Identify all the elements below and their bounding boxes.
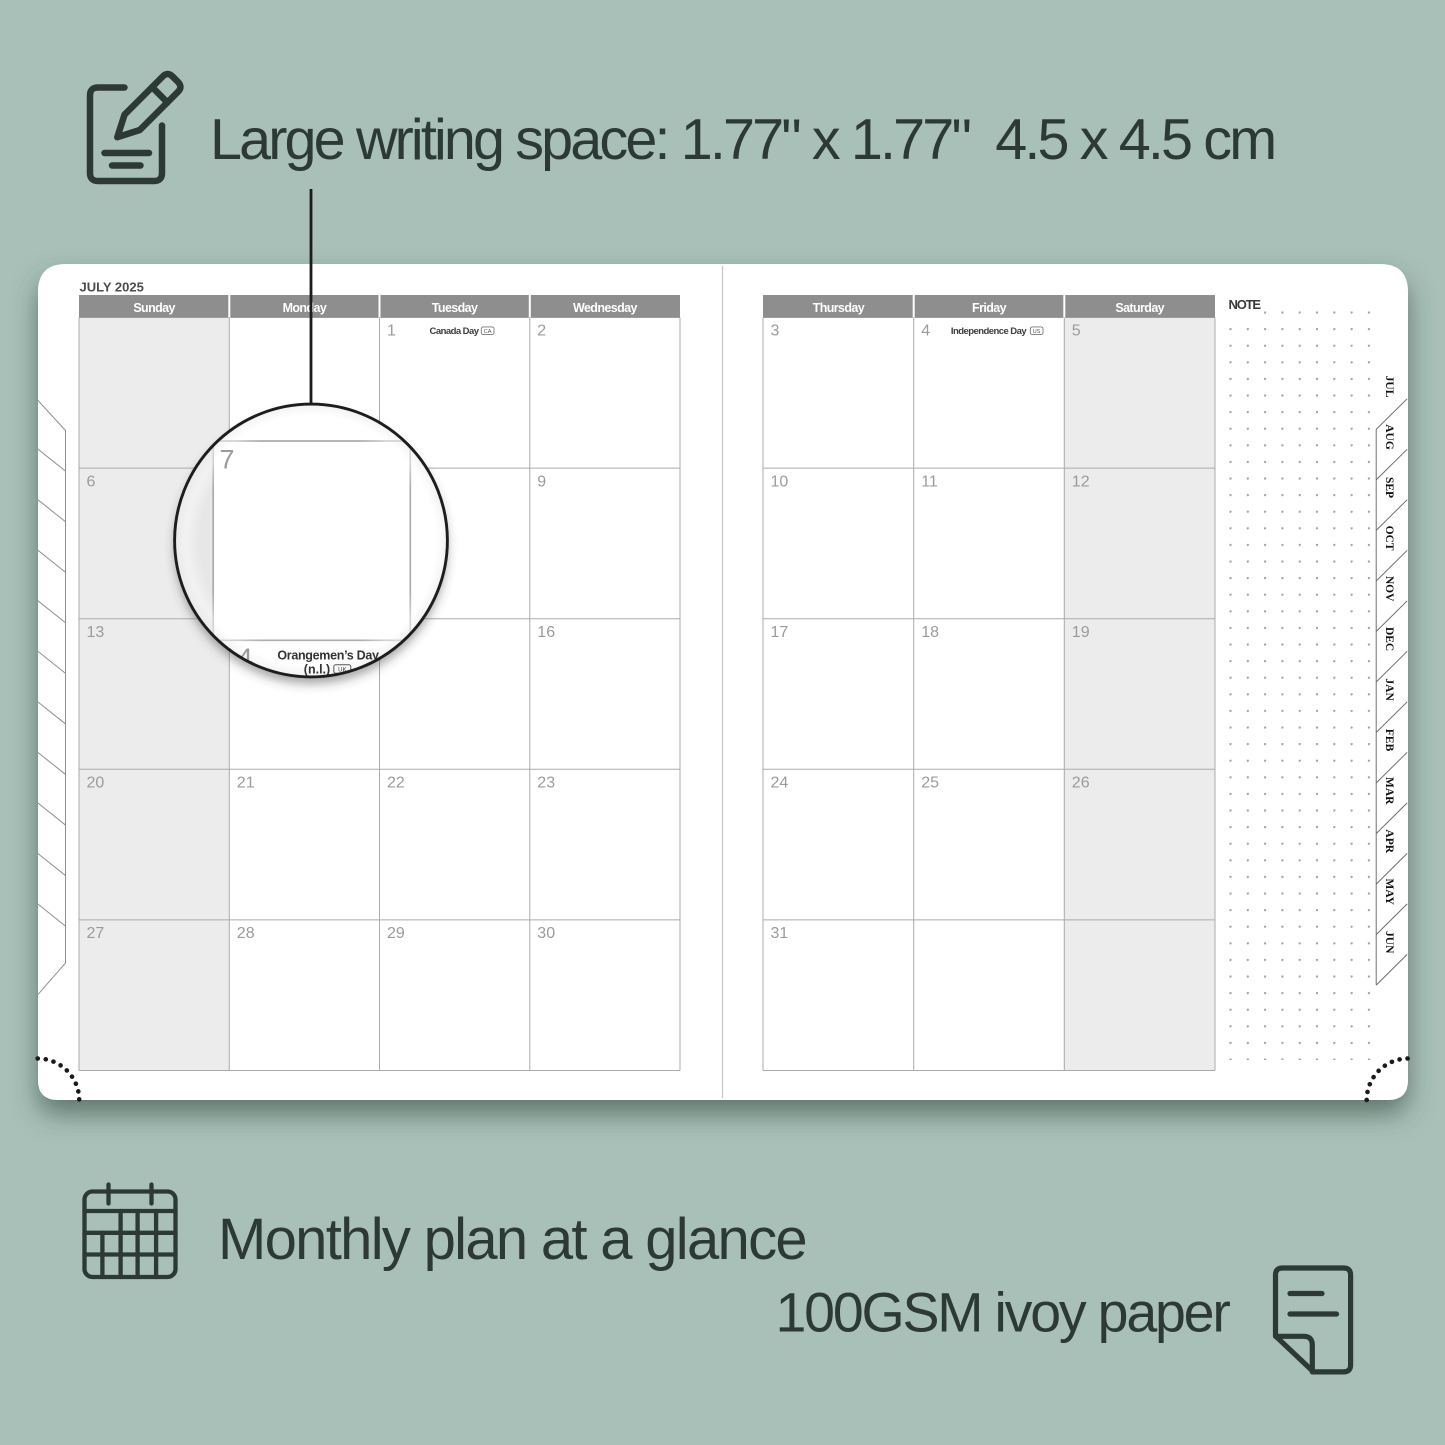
svg-text:11: 11 bbox=[921, 473, 938, 490]
svg-text:Wednesday: Wednesday bbox=[573, 301, 637, 315]
svg-text:29: 29 bbox=[387, 925, 405, 942]
svg-text:22: 22 bbox=[387, 775, 405, 792]
svg-text:100GSM ivoy paper: 100GSM ivoy paper bbox=[776, 1282, 1231, 1344]
svg-text:Monthly plan at a glance: Monthly plan at a glance bbox=[218, 1207, 806, 1272]
svg-text:NOV: NOV bbox=[1383, 576, 1395, 602]
svg-text:13: 13 bbox=[87, 624, 105, 641]
svg-text:3: 3 bbox=[771, 323, 780, 340]
svg-text:31: 31 bbox=[771, 925, 789, 942]
svg-text:19: 19 bbox=[1072, 624, 1090, 641]
svg-text:26: 26 bbox=[1072, 775, 1090, 792]
svg-text:30: 30 bbox=[537, 925, 555, 942]
svg-text:27: 27 bbox=[87, 925, 105, 942]
svg-text:AUG: AUG bbox=[1383, 424, 1395, 450]
svg-text:JAN: JAN bbox=[1383, 678, 1395, 701]
svg-text:JUL: JUL bbox=[1383, 376, 1395, 398]
svg-text:Saturday: Saturday bbox=[1115, 301, 1164, 315]
svg-text:7: 7 bbox=[220, 444, 235, 474]
svg-text:US: US bbox=[1033, 329, 1041, 335]
svg-text:JULY 2025: JULY 2025 bbox=[80, 280, 144, 295]
svg-text:20: 20 bbox=[87, 775, 105, 792]
svg-text:OCT: OCT bbox=[1383, 526, 1395, 551]
svg-text:Friday: Friday bbox=[972, 301, 1007, 315]
svg-text:FEB: FEB bbox=[1383, 729, 1395, 752]
svg-text:SEP: SEP bbox=[1383, 477, 1395, 498]
svg-text:28: 28 bbox=[237, 925, 255, 942]
svg-text:MAR: MAR bbox=[1383, 777, 1395, 805]
svg-text:12: 12 bbox=[1072, 473, 1090, 490]
svg-text:25: 25 bbox=[921, 775, 939, 792]
svg-text:10: 10 bbox=[771, 473, 789, 490]
svg-text:16: 16 bbox=[537, 624, 555, 641]
svg-text:Canada Day: Canada Day bbox=[430, 326, 480, 337]
svg-text:Large writing space: 1.77" x 1: Large writing space: 1.77" x 1.77" 4.5 x… bbox=[210, 108, 1274, 172]
svg-text:NOTE: NOTE bbox=[1229, 297, 1262, 312]
svg-text:CA: CA bbox=[484, 329, 492, 335]
svg-text:Thursday: Thursday bbox=[813, 301, 865, 315]
svg-text:18: 18 bbox=[921, 624, 939, 641]
svg-text:JUN: JUN bbox=[1383, 931, 1395, 954]
svg-text:Monday: Monday bbox=[283, 301, 327, 315]
svg-text:1: 1 bbox=[387, 323, 396, 340]
svg-text:Orangemen’s Day: Orangemen’s Day bbox=[277, 649, 379, 663]
svg-text:24: 24 bbox=[771, 775, 789, 792]
svg-text:Sunday: Sunday bbox=[133, 301, 175, 315]
svg-text:17: 17 bbox=[771, 624, 789, 641]
svg-text:9: 9 bbox=[537, 473, 546, 490]
svg-text:(n.l.): (n.l.) bbox=[304, 662, 330, 676]
svg-text:Independence Day: Independence Day bbox=[951, 326, 1027, 337]
svg-text:2: 2 bbox=[537, 323, 546, 340]
svg-text:Tuesday: Tuesday bbox=[432, 301, 478, 315]
svg-text:6: 6 bbox=[87, 473, 96, 490]
svg-text:21: 21 bbox=[237, 775, 255, 792]
svg-text:4: 4 bbox=[921, 323, 930, 340]
svg-text:DEC: DEC bbox=[1383, 627, 1395, 651]
svg-text:5: 5 bbox=[1072, 323, 1081, 340]
svg-text:MAY: MAY bbox=[1383, 878, 1395, 905]
svg-text:APR: APR bbox=[1383, 829, 1395, 853]
svg-text:23: 23 bbox=[537, 775, 555, 792]
